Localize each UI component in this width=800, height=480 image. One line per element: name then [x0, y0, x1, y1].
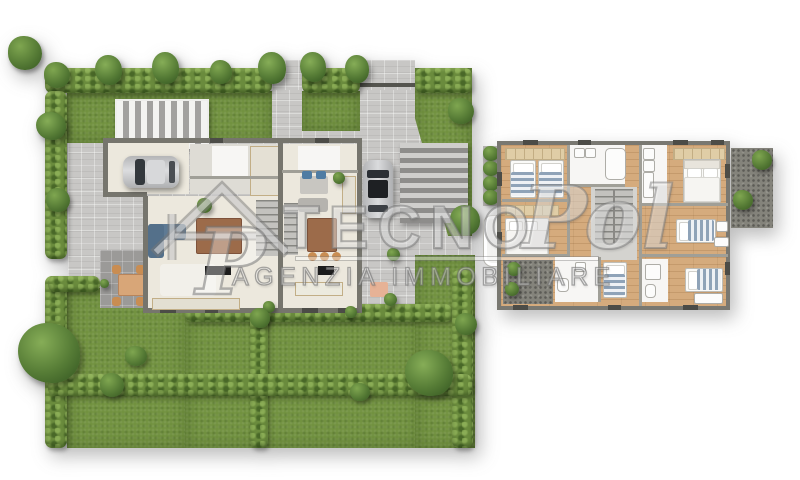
unit2-chair-tan	[308, 252, 317, 261]
unit2-chair-blue	[302, 171, 312, 179]
unit1-dining-table	[196, 218, 242, 254]
car-roof	[147, 160, 165, 184]
wall-interior	[502, 199, 567, 202]
duvet	[506, 230, 548, 255]
car-silver-garage	[123, 156, 179, 188]
single-bed	[538, 160, 564, 198]
tree-large	[405, 350, 453, 396]
wall-interior	[642, 203, 728, 206]
window	[673, 140, 688, 145]
dresser	[714, 237, 729, 247]
single-bed	[510, 160, 536, 198]
bush	[448, 98, 474, 124]
wall-interior	[642, 254, 728, 257]
tree	[258, 52, 286, 84]
bush	[345, 306, 357, 318]
car-windshield	[135, 159, 145, 185]
floor-plan-render-canvas: P TECNO Pol AGENZIA IMMOBILIARE	[0, 0, 800, 480]
sink	[585, 148, 596, 158]
bush	[387, 248, 400, 261]
bush	[455, 313, 477, 335]
unit1-closet	[250, 146, 280, 196]
lawn-top-middle	[302, 91, 360, 131]
tree	[152, 52, 179, 84]
terrace-plant	[507, 262, 521, 276]
striped-blanket	[688, 220, 714, 241]
terrace-plant	[733, 190, 753, 210]
unit1-sofa-chaise	[148, 224, 164, 258]
car-windshield	[367, 170, 389, 178]
tree	[450, 205, 480, 235]
single-bed	[603, 262, 627, 298]
unit2-chair-tan	[320, 252, 329, 261]
unit2-staircase	[284, 203, 298, 255]
sink	[574, 148, 585, 158]
single-bed	[676, 219, 716, 243]
unit1-tv	[205, 266, 231, 275]
unit2-tv	[318, 266, 334, 275]
desk	[694, 293, 723, 304]
master-bed	[683, 159, 721, 203]
hedge-top-right	[415, 68, 472, 93]
counter	[643, 172, 654, 198]
unit1-wardrobe	[152, 298, 240, 310]
car-rear-window	[368, 205, 388, 212]
bush	[46, 188, 70, 212]
unit2-dining-table	[307, 218, 337, 252]
unit2-chair-blue	[316, 171, 326, 179]
window	[711, 140, 724, 145]
outdoor-chair	[112, 297, 121, 306]
striped-blanket	[511, 172, 534, 196]
striped-blanket	[604, 274, 625, 296]
terrace-plant	[505, 282, 519, 296]
unit2-chair-tan	[332, 252, 341, 261]
washer	[643, 148, 655, 160]
upper-floor-plan	[483, 140, 775, 312]
bathtub	[605, 148, 626, 180]
bush	[350, 383, 370, 401]
wall-interior	[598, 257, 601, 302]
tree	[36, 112, 66, 140]
nightstand	[716, 221, 728, 232]
window	[497, 232, 502, 244]
window	[210, 138, 223, 143]
patio-plant	[100, 279, 109, 288]
window	[523, 140, 538, 145]
unit1-staircase	[256, 200, 278, 256]
stair-rail	[613, 189, 615, 243]
unit2-bathroom	[298, 146, 340, 170]
window	[683, 305, 698, 310]
window	[725, 262, 730, 275]
unit1-houseplant	[197, 198, 212, 213]
duvet	[684, 177, 720, 202]
hedge-garden-corner	[48, 276, 100, 292]
unit2-sofa	[298, 198, 328, 212]
tree	[8, 36, 42, 70]
unit2-wardrobe	[295, 282, 343, 296]
bush	[44, 62, 70, 88]
ground-floor-plan	[40, 55, 492, 405]
toilet	[557, 278, 569, 292]
sink	[575, 262, 586, 272]
wall-garage-bottom	[103, 192, 147, 197]
driveway-gate	[358, 83, 415, 87]
car-roof-panel	[368, 180, 388, 198]
double-bed	[505, 218, 549, 256]
window	[302, 308, 318, 313]
wall-interior	[190, 176, 278, 179]
window	[497, 172, 502, 186]
tree	[95, 55, 122, 85]
bush	[210, 60, 232, 84]
wall-party-divider	[278, 140, 283, 313]
window	[315, 138, 329, 143]
hedge-right-lower	[452, 270, 473, 448]
toilet	[645, 284, 656, 298]
tree-large	[18, 323, 80, 383]
car-silver-parking	[363, 160, 393, 218]
unit1-bathroom	[212, 146, 248, 176]
window	[578, 140, 591, 145]
wall-garage-left	[103, 138, 108, 196]
bush	[384, 293, 397, 306]
bush	[125, 346, 147, 366]
double-room-wardrobe	[505, 205, 559, 216]
unit2-closet	[342, 176, 356, 214]
twin-room-wardrobe	[505, 148, 565, 160]
wall-right	[357, 140, 362, 313]
terrace-plant	[752, 150, 772, 170]
bush	[250, 308, 270, 328]
striped-blanket	[697, 269, 721, 290]
washer	[643, 160, 655, 172]
shower	[645, 264, 661, 280]
unit2-houseplant	[333, 172, 345, 184]
car-rear-window	[169, 161, 175, 183]
bush	[100, 373, 124, 397]
single-bed	[685, 268, 723, 292]
tree	[300, 52, 326, 82]
tree	[345, 55, 369, 83]
striped-blanket	[539, 172, 562, 196]
window	[608, 305, 621, 310]
window	[513, 305, 528, 310]
window	[725, 164, 730, 178]
outdoor-chair	[112, 265, 121, 274]
